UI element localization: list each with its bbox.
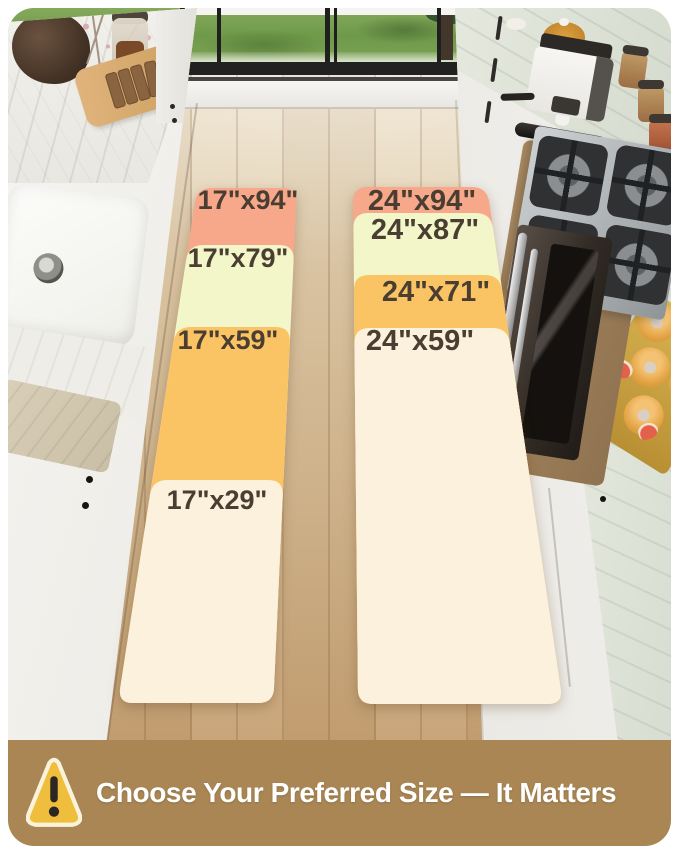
- rug-24in: 24"x94" 24"x87" 24"x71" 24"x59": [353, 185, 561, 704]
- rug-size-label-24x94: 24"x94": [368, 185, 476, 217]
- exclamation-dot: [49, 807, 59, 817]
- product-image: 17"x94" 17"x79" 17"x59" 17"x29" 24"x94" …: [0, 0, 679, 854]
- rug-17in: 17"x94" 17"x79" 17"x59" 17"x29": [120, 185, 298, 703]
- exclamation-bar: [50, 776, 57, 802]
- rug-size-label-24x87: 24"x87": [371, 214, 479, 246]
- rug-size-label-24x71: 24"x71": [382, 276, 490, 308]
- warning-icon: [26, 755, 82, 831]
- rug-size-label-17x94: 17"x94": [198, 185, 299, 215]
- size-banner: Choose Your Preferred Size — It Matters: [8, 740, 671, 846]
- kitchen-scene: 17"x94" 17"x79" 17"x59" 17"x29" 24"x94" …: [8, 8, 671, 740]
- rug-size-label-24x59: 24"x59": [366, 325, 474, 357]
- rug-size-label-17x29: 17"x29": [167, 485, 268, 515]
- rug-size-label-17x59: 17"x59": [178, 325, 279, 355]
- rug-size-overlay: 17"x94" 17"x79" 17"x59" 17"x29" 24"x94" …: [8, 8, 671, 740]
- banner-text: Choose Your Preferred Size — It Matters: [96, 740, 616, 846]
- rug-size-label-17x79: 17"x79": [188, 243, 289, 273]
- rug-band-24x59: [354, 328, 561, 704]
